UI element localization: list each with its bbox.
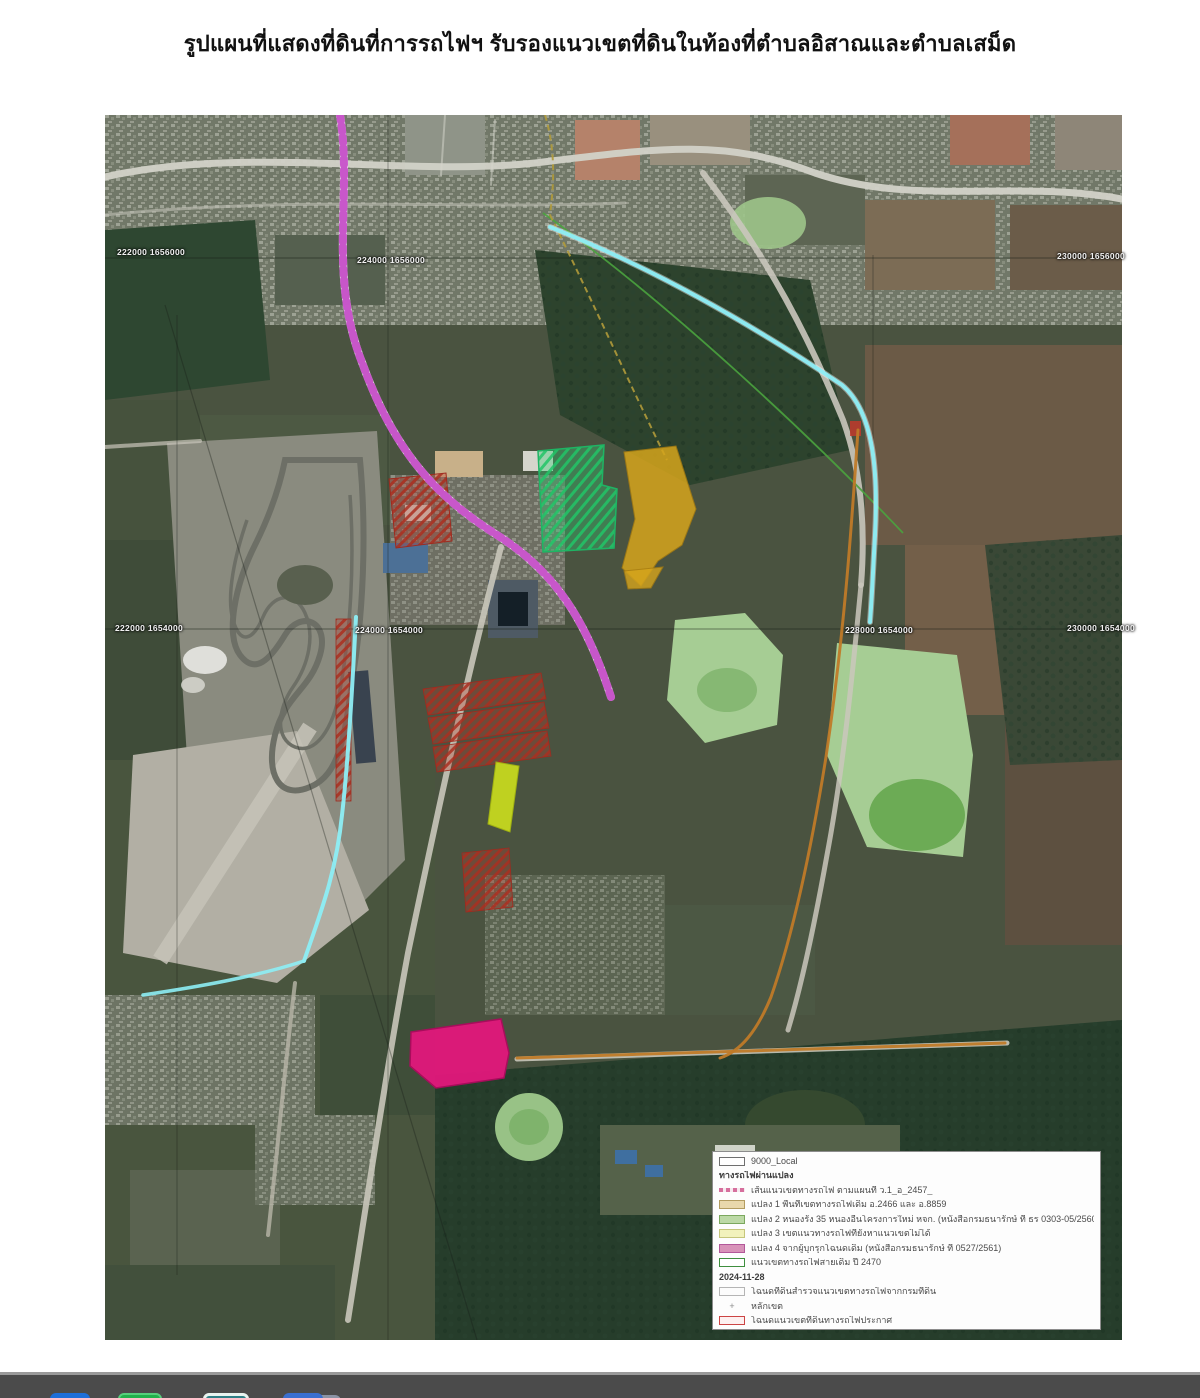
red-survey-marker	[850, 421, 861, 436]
green-border-swatch	[719, 1258, 745, 1267]
legend-row: โฉนดที่ดินสำรวจแนวเขตทางรถไฟจากกรมที่ดิน	[719, 1287, 1094, 1296]
white-box-swatch	[719, 1157, 745, 1166]
legend-label: 9000_Local	[751, 1157, 798, 1166]
pink-swatch	[719, 1244, 745, 1253]
tan-swatch	[719, 1200, 745, 1209]
grid-label: 224000 1654000	[355, 625, 423, 635]
taskbar-blue-app-icon[interactable]	[50, 1393, 90, 1398]
red-border-swatch	[719, 1316, 745, 1325]
grid-label: 228000 1654000	[845, 625, 913, 635]
screenshot-root: รูปแผนที่แสดงที่ดินที่การรถไฟฯ รับรองแนว…	[0, 0, 1200, 1398]
legend-section-header: ทางรถไฟผ่านแปลง	[719, 1171, 1094, 1180]
parcel-4-pink	[410, 1019, 509, 1088]
grid-label: 230000 1654000	[1067, 623, 1135, 633]
legend-label: หลักเขต	[751, 1302, 783, 1311]
yellow-swatch	[719, 1229, 745, 1238]
legend-label: โฉนดแนวเขตที่ดินทางรถไฟประกาศ	[751, 1316, 892, 1325]
plain-box-swatch	[719, 1287, 745, 1296]
satellite-map-image: 222000 1656000 224000 1656000 230000 165…	[105, 115, 1122, 1340]
legend-row: เส้นแนวเขตทางรถไฟ ตามแผนที่ ว.1_อ_2457_	[719, 1186, 1094, 1195]
legend-label: แปลง 2 หนองรัง 35 หนองอื่นโครงการใหม่ หจ…	[751, 1215, 1094, 1224]
legend-row: แปลง 2 หนองรัง 35 หนองอื่นโครงการใหม่ หจ…	[719, 1215, 1094, 1224]
map-legend: 9000_Local ทางรถไฟผ่านแปลง เส้นแนวเขตทาง…	[712, 1151, 1101, 1330]
pink-dash-line-swatch	[719, 1188, 745, 1192]
legend-label: แปลง 3 เขตแนวทางรถไฟที่ยังหาแนวเขตไม่ได้	[751, 1229, 931, 1238]
legend-label: โฉนดที่ดินสำรวจแนวเขตทางรถไฟจากกรมที่ดิน	[751, 1287, 936, 1296]
legend-label: แปลง 1 พื้นที่เขตทางรถไฟเดิม อ.2466 และ …	[751, 1200, 946, 1209]
legend-row: โฉนดแนวเขตที่ดินทางรถไฟประกาศ	[719, 1316, 1094, 1325]
legend-label: แนวเขตทางรถไฟสายเดิม ปี 2470	[751, 1258, 881, 1267]
legend-row: แปลง 4 จากผู้บุกรุกโฉนดเดิม (หนังสือกรมธ…	[719, 1244, 1094, 1253]
plus-marker-swatch: +	[719, 1302, 745, 1311]
taskbar-teal-app-icon[interactable]	[203, 1393, 249, 1398]
page-title: รูปแผนที่แสดงที่ดินที่การรถไฟฯ รับรองแนว…	[0, 26, 1200, 61]
grid-label: 224000 1656000	[357, 255, 425, 265]
legend-label: ทางรถไฟผ่านแปลง	[719, 1171, 793, 1180]
taskbar-green-app-icon[interactable]	[118, 1393, 162, 1398]
green-swatch	[719, 1215, 745, 1224]
parcel-red-a	[389, 473, 452, 548]
grid-label: 230000 1656000	[1057, 251, 1125, 261]
taskbar	[0, 1372, 1200, 1398]
taskbar-blue-doc-app-icon[interactable]	[283, 1393, 323, 1398]
legend-row: + หลักเขต	[719, 1302, 1094, 1311]
legend-row: 9000_Local	[719, 1157, 1094, 1166]
legend-date-row: 2024-11-28	[719, 1273, 1094, 1282]
legend-row: แปลง 3 เขตแนวทางรถไฟที่ยังหาแนวเขตไม่ได้	[719, 1229, 1094, 1238]
legend-label: แปลง 4 จากผู้บุกรุกโฉนดเดิม (หนังสือกรมธ…	[751, 1244, 1001, 1253]
legend-label: เส้นแนวเขตทางรถไฟ ตามแผนที่ ว.1_อ_2457_	[751, 1186, 932, 1195]
grid-label: 222000 1656000	[117, 247, 185, 257]
parcel-red-d	[462, 848, 513, 912]
grid-label: 222000 1654000	[115, 623, 183, 633]
legend-row: แปลง 1 พื้นที่เขตทางรถไฟเดิม อ.2466 และ …	[719, 1200, 1094, 1209]
legend-date: 2024-11-28	[719, 1273, 765, 1282]
legend-row: แนวเขตทางรถไฟสายเดิม ปี 2470	[719, 1258, 1094, 1267]
